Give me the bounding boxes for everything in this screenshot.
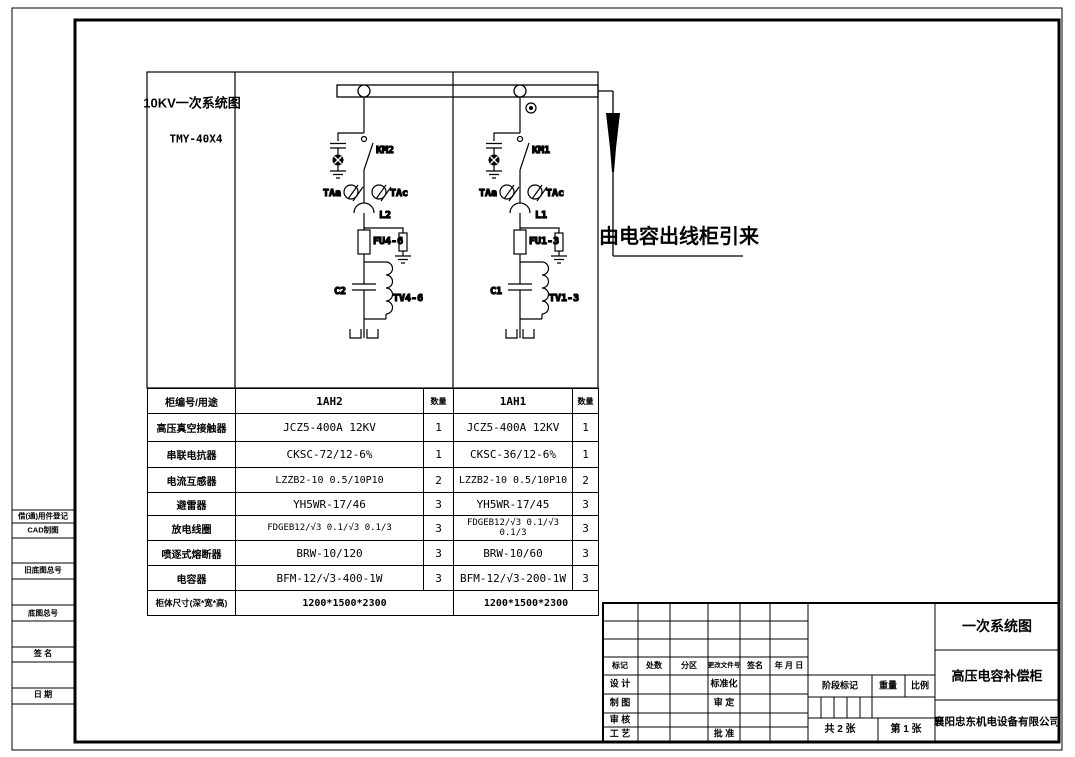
incoming-cable-note: 由电容出线柜引来 bbox=[599, 227, 759, 247]
qty-cell: 1 bbox=[573, 442, 599, 468]
capacitor-symbol bbox=[352, 284, 376, 290]
document-title: 一次系统图 bbox=[962, 619, 1032, 633]
header-qty-cell: 数量 bbox=[573, 389, 599, 414]
busbar-model-label: TMY-40X4 bbox=[170, 134, 223, 145]
coil-label: TV1-3 bbox=[549, 293, 579, 304]
row-label-cell: 喷逐式熔断器 bbox=[148, 541, 236, 566]
value-cell: JCZ5-400A 12KV bbox=[236, 414, 424, 442]
qty-cell: 3 bbox=[573, 566, 599, 591]
fuse-label: FU4-6 bbox=[373, 236, 403, 247]
circuit-1ah2: KM2 TAa TAc L2 FU4-6 C2 TV4-6 bbox=[323, 97, 423, 338]
circuit-1ah1: KM1 TAa TAc L1 FU1-3 C1 TV1-3 bbox=[479, 97, 579, 338]
header-cab2-cell: 1AH1 bbox=[454, 389, 573, 414]
aux-branch bbox=[486, 133, 520, 178]
margin-label-cad-drafting: CAD制图 bbox=[27, 526, 58, 534]
contactor-symbol bbox=[518, 137, 530, 171]
rev-col-docno: 更改文件号 bbox=[708, 663, 741, 670]
plug-contact-symbol bbox=[506, 319, 534, 338]
value-cell: FDGEB12/√3 0.1/√3 0.1/3 bbox=[236, 516, 424, 541]
capacitor-label: C2 bbox=[334, 286, 346, 297]
company-name: 襄阳忠东机电设备有限公司 bbox=[934, 717, 1060, 728]
schematic-box bbox=[147, 72, 598, 388]
value-cell: JCZ5-400A 12KV bbox=[454, 414, 573, 442]
header-label-cell: 柜编号/用途 bbox=[148, 389, 236, 414]
role-process: 工 艺 bbox=[610, 730, 631, 739]
scale-label: 比例 bbox=[911, 682, 929, 691]
role-design: 设 计 bbox=[610, 680, 631, 689]
value-cell: BRW-10/60 bbox=[454, 541, 573, 566]
rev-col-mark: 标记 bbox=[612, 662, 628, 670]
role-check: 审 核 bbox=[610, 716, 631, 725]
role-drafting: 制 图 bbox=[610, 699, 631, 708]
qty-cell: 1 bbox=[424, 414, 454, 442]
qty-cell: 2 bbox=[424, 468, 454, 493]
value-cell: YH5WR-17/46 bbox=[236, 493, 424, 516]
rev-col-zone: 分区 bbox=[681, 662, 697, 670]
value-cell: BFM-12/√3-400-1W bbox=[236, 566, 424, 591]
table-row: 电流互感器 LZZB2-10 0.5/10P10 2 LZZB2-10 0.5/… bbox=[148, 468, 599, 493]
row-label-cell: 串联电抗器 bbox=[148, 442, 236, 468]
drawing-frame bbox=[12, 8, 1062, 750]
header-qty-cell: 数量 bbox=[424, 389, 454, 414]
sheet-number-label: 第 1 张 bbox=[890, 725, 921, 735]
contactor-label: KM2 bbox=[376, 145, 394, 156]
table-row: 柜体尺寸(深*宽*高) 1200*1500*2300 1200*1500*230… bbox=[148, 591, 599, 616]
row-label-cell: 电容器 bbox=[148, 566, 236, 591]
reactor-symbol bbox=[510, 203, 530, 213]
table-row: 喷逐式熔断器 BRW-10/120 3 BRW-10/60 3 bbox=[148, 541, 599, 566]
rev-col-sign: 签名 bbox=[747, 662, 763, 670]
contactor-label: KM1 bbox=[532, 145, 550, 156]
ct-right-label: TAc bbox=[390, 188, 408, 199]
qty-cell: 3 bbox=[573, 516, 599, 541]
sheet-total-label: 共 2 张 bbox=[824, 725, 855, 735]
value-cell: CKSC-36/12-6% bbox=[454, 442, 573, 468]
ct-left-label: TAa bbox=[479, 188, 497, 199]
table-row: 高压真空接触器 JCZ5-400A 12KV 1 JCZ5-400A 12KV … bbox=[148, 414, 599, 442]
drawing-sheet: KM2 TAa TAc L2 FU4-6 C2 TV4-6 bbox=[0, 0, 1075, 757]
row-label-cell: 高压真空接触器 bbox=[148, 414, 236, 442]
footer-dim-cell: 1200*1500*2300 bbox=[454, 591, 599, 616]
fuse-symbol bbox=[358, 230, 370, 254]
stage-mark-label: 阶段标记 bbox=[822, 682, 858, 691]
ct-symbols bbox=[500, 185, 547, 201]
value-cell: CKSC-72/12-6% bbox=[236, 442, 424, 468]
qty-cell: 3 bbox=[424, 541, 454, 566]
margin-label-signature: 签 名 bbox=[34, 650, 52, 658]
product-name: 高压电容补偿柜 bbox=[951, 670, 1042, 683]
role-standardization: 标准化 bbox=[710, 680, 737, 689]
row-label-cell: 电流互感器 bbox=[148, 468, 236, 493]
rev-col-date: 年 月 日 bbox=[775, 662, 803, 670]
aux-branch bbox=[330, 133, 364, 178]
value-cell: LZZB2-10 0.5/10P10 bbox=[236, 468, 424, 493]
busbar bbox=[337, 85, 598, 97]
margin-label-borrowed-parts: 借(通)用件登记 bbox=[18, 512, 68, 520]
reactor-symbol bbox=[354, 203, 374, 213]
margin-label-date: 日 期 bbox=[34, 691, 52, 699]
qty-cell: 1 bbox=[573, 414, 599, 442]
ct-left-label: TAa bbox=[323, 188, 341, 199]
role-approval-review: 审 定 bbox=[714, 699, 735, 708]
plug-contact-symbol bbox=[350, 319, 378, 338]
fuse-symbol bbox=[514, 230, 526, 254]
value-cell: YH5WR-17/45 bbox=[454, 493, 573, 516]
value-cell: BFM-12/√3-200-1W bbox=[454, 566, 573, 591]
value-cell: BRW-10/120 bbox=[236, 541, 424, 566]
fuse-label: FU1-3 bbox=[529, 236, 559, 247]
coil-label: TV4-6 bbox=[393, 293, 423, 304]
qty-cell: 3 bbox=[573, 541, 599, 566]
reactor-label: L1 bbox=[535, 210, 547, 221]
footer-dim-cell: 1200*1500*2300 bbox=[236, 591, 454, 616]
reactor-label: L2 bbox=[379, 210, 391, 221]
qty-cell: 3 bbox=[573, 493, 599, 516]
table-row: 避雷器 YH5WR-17/46 3 YH5WR-17/45 3 bbox=[148, 493, 599, 516]
footer-label-cell: 柜体尺寸(深*宽*高) bbox=[148, 591, 236, 616]
ct-right-label: TAc bbox=[546, 188, 564, 199]
equipment-table: 柜编号/用途 1AH2 数量 1AH1 数量 高压真空接触器 JCZ5-400A… bbox=[147, 388, 599, 616]
header-cab1-cell: 1AH2 bbox=[236, 389, 424, 414]
weight-label: 重量 bbox=[879, 682, 897, 691]
system-diagram-title: 10KV一次系统图 bbox=[143, 97, 241, 110]
ct-symbols bbox=[344, 185, 391, 201]
qty-cell: 1 bbox=[424, 442, 454, 468]
capacitor-label: C1 bbox=[490, 286, 502, 297]
table-row: 电容器 BFM-12/√3-400-1W 3 BFM-12/√3-200-1W … bbox=[148, 566, 599, 591]
margin-label-master-no: 底图总号 bbox=[28, 609, 58, 617]
table-row: 串联电抗器 CKSC-72/12-6% 1 CKSC-36/12-6% 1 bbox=[148, 442, 599, 468]
value-cell: FDGEB12/√3 0.1/√3 0.1/3 bbox=[454, 516, 573, 541]
value-cell: LZZB2-10 0.5/10P10 bbox=[454, 468, 573, 493]
cable-termination-icon bbox=[606, 113, 620, 172]
rev-col-count: 处数 bbox=[646, 662, 662, 670]
qty-cell: 3 bbox=[424, 493, 454, 516]
role-authorize: 批 准 bbox=[714, 730, 735, 739]
row-label-cell: 放电线圈 bbox=[148, 516, 236, 541]
table-row: 柜编号/用途 1AH2 数量 1AH1 数量 bbox=[148, 389, 599, 414]
margin-cells bbox=[12, 510, 75, 704]
row-label-cell: 避雷器 bbox=[148, 493, 236, 516]
schematic-canvas: KM2 TAa TAc L2 FU4-6 C2 TV4-6 bbox=[0, 0, 1075, 757]
qty-cell: 2 bbox=[573, 468, 599, 493]
margin-label-old-master-no: 旧底图总号 bbox=[24, 566, 62, 574]
qty-cell: 3 bbox=[424, 516, 454, 541]
capacitor-symbol bbox=[508, 284, 532, 290]
connection-indicator-icon bbox=[526, 103, 536, 113]
qty-cell: 3 bbox=[424, 566, 454, 591]
table-row: 放电线圈 FDGEB12/√3 0.1/√3 0.1/3 3 FDGEB12/√… bbox=[148, 516, 599, 541]
contactor-symbol bbox=[362, 137, 374, 171]
